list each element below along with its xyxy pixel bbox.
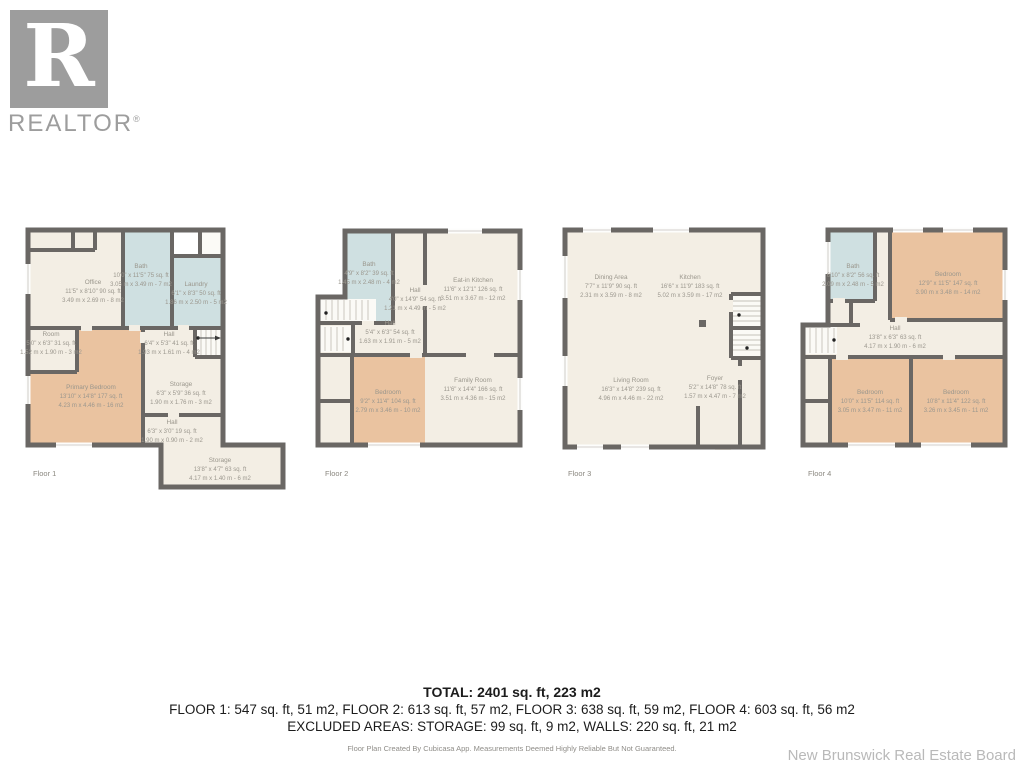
room-name: Room [42,331,59,338]
room-name: Eat-in Kitchen [453,277,493,284]
room-dims-m: 1.52 m x 1.90 m - 3 m2 [20,350,82,356]
room-dims-m: 3.90 m x 3.48 m - 14 m2 [915,290,981,296]
realtor-logo: R [10,10,108,108]
room-bath [123,230,172,328]
room-dims-m: 1.93 m x 1.61 m - 4 m2 [138,350,200,356]
room-office [28,230,123,328]
stairs-icon [805,327,837,354]
total-area: TOTAL: 2401 sq. ft, 223 m2 [0,684,1024,701]
room-dims-m: 4.17 m x 1.40 m - 6 m2 [189,476,251,482]
room-dims-ft: 12'9" x 11'5" 147 sq. ft [919,281,978,287]
room-dims-m: 3.05 m x 3.47 m - 11 m2 [838,408,903,414]
room-name: Storage [209,457,232,464]
room-dims-m: 1.57 m x 4.47 m - 7 m2 [684,394,746,400]
room-dims-ft: 16'3" x 14'8" 239 sq. ft [601,387,661,393]
room-dims-m: 4.23 m x 4.46 m - 16 m2 [58,403,124,409]
room-name: Bedroom [857,389,883,396]
room-dims-ft: 5'4" x 6'3" 54 sq. ft [365,330,415,336]
room-name: Dining Area [594,274,627,281]
room-dims-m: 1.86 m x 2.50 m - 5 m2 [165,300,227,306]
room-name: Hall [384,320,395,327]
room-dims-m: 3.26 m x 3.45 m - 11 m2 [924,408,989,414]
floor-label: Floor 2 [325,469,348,478]
room-dims-m: 3.51 m x 4.36 m - 15 m2 [440,396,506,402]
room-name: Office [85,279,102,286]
room-name: Hall [163,331,174,338]
room-dims-ft: 11'6" x 14'4" 166 sq. ft [444,387,503,393]
room-name: Family Room [454,377,492,384]
room-dims-ft: 11'5" x 8'10" 90 sq. ft [65,289,121,295]
area-summary: TOTAL: 2401 sq. ft, 223 m2 FLOOR 1: 547 … [0,684,1024,735]
room-dims-ft: 13'8" x 4'7" 63 sq. ft [194,467,247,473]
room-dims-m: 3.05 m x 3.49 m - 7 m2 [110,282,172,288]
floor-label: Floor 4 [808,469,831,478]
room-dims-ft: 10'8" x 11'4" 122 sq. ft [927,399,986,405]
room-dims-ft: 5'0" x 6'3" 31 sq. ft [26,341,76,347]
chimney-icon [699,320,706,327]
floor-3-plan: Dining Area 7'7" x 11'9" 90 sq. ft 2.31 … [563,226,768,492]
room-name: Living Room [613,377,649,384]
room-dims-ft: 10'0" x 11'5" 75 sq. ft [113,273,169,279]
room-dims-ft: 10'0" x 11'5" 114 sq. ft [841,399,900,405]
room-dims-m: 1.90 m x 1.76 m - 3 m2 [150,400,212,406]
stairs-icon [733,296,761,326]
room-dims-ft: 6'3" x 3'0" 19 sq. ft [147,429,197,435]
room-name: Laundry [184,281,208,288]
stairs-icon [196,330,221,355]
room-dims-m: 1.21 m x 4.49 m - 5 m2 [384,306,446,312]
registered-mark: ® [133,114,140,124]
room-name: Storage [170,381,193,388]
room-dims-ft: 6'1" x 8'3" 50 sq. ft [171,291,221,297]
floor-label: Floor 3 [568,469,591,478]
room-name: Hall [889,325,900,332]
realtor-wordmark: REALTOR® [8,110,140,138]
room-dims-m: 2.09 m x 2.48 m - 5 m2 [822,282,884,288]
room-dims-ft: 6'4" x 5'3" 41 sq. ft [144,341,194,347]
room-name: Hall [409,287,420,294]
room-dims-ft: 5'2" x 14'8" 78 sq. ft [689,385,742,391]
room-name: Bath [362,261,376,268]
room-name: Hall [166,419,177,426]
room-dims-ft: 6'3" x 5'9" 36 sq. ft [156,391,206,397]
room-name: Primary Bedroom [66,384,116,391]
room-name: Bath [846,263,860,270]
room-dims-m: 2.79 m x 3.46 m - 10 m2 [355,408,421,414]
room-dims-m: 3.51 m x 3.67 m - 12 m2 [440,296,506,302]
room-dims-ft: 13'10" x 14'8" 177 sq. ft [60,394,123,400]
room-name: Kitchen [679,274,701,281]
floor-label: Floor 1 [33,469,56,478]
room-dims-ft: 4'0" x 14'9" 54 sq. ft [389,297,442,303]
room-name: Bedroom [935,271,961,278]
room-dims-m: 4.17 m x 1.90 m - 6 m2 [864,344,926,350]
room-dims-ft: 16'6" x 11'9" 183 sq. ft [661,284,720,290]
floor-plan-page: R REALTOR® Office 11'5" x 8'10" 90 sq. f… [0,0,1024,768]
room-dims-ft: 9'2" x 11'4" 104 sq. ft [360,399,416,405]
floor-areas: FLOOR 1: 547 sq. ft, 51 m2, FLOOR 2: 613… [0,701,1024,718]
room-dims-m: 4.96 m x 4.46 m - 22 m2 [598,396,664,402]
room-dims-m: 5.02 m x 3.59 m - 17 m2 [657,293,723,299]
floor-2-plan: Bath 4'9" x 8'2" 39 sq. ft 1.45 m x 2.48… [318,226,528,492]
excluded-areas: EXCLUDED AREAS: STORAGE: 99 sq. ft, 9 m2… [0,718,1024,735]
room-dims-ft: 13'8" x 6'3" 63 sq. ft [869,335,922,341]
board-name: New Brunswick Real Estate Board [788,747,1016,764]
stairs-icon [320,326,351,352]
room-name: Bedroom [375,389,401,396]
room-dims-ft: 4'9" x 8'2" 39 sq. ft [344,271,394,277]
room-dims-m: 1.90 m x 0.90 m - 2 m2 [141,438,203,444]
room-dims-m: 3.49 m x 2.69 m - 8 m2 [62,298,124,304]
room-name: Foyer [707,375,724,382]
realtor-wordmark-text: REALTOR [8,110,133,137]
room-dims-m: 1.45 m x 2.48 m - 4 m2 [338,280,400,286]
stairs-icon [733,330,761,356]
room-dims-ft: 6'10" x 8'2" 56 sq. ft [827,273,880,279]
realtor-logo-r-icon: R [23,14,94,100]
room-name: Bath [134,263,148,270]
room-dims-ft: 11'6" x 12'1" 126 sq. ft [444,287,503,293]
room-dims-ft: 7'7" x 11'9" 90 sq. ft [585,284,637,290]
stairs-icon [320,299,376,321]
room-name: Bedroom [943,389,969,396]
floor-1-plan: Office 11'5" x 8'10" 90 sq. ft 3.49 m x … [26,226,288,492]
entry-nook [200,230,223,256]
floor-4-plan: Bath 6'10" x 8'2" 56 sq. ft 2.09 m x 2.4… [803,226,1013,492]
room-dims-m: 1.63 m x 1.91 m - 5 m2 [359,339,421,345]
room-dims-m: 2.31 m x 3.59 m - 8 m2 [580,293,642,299]
